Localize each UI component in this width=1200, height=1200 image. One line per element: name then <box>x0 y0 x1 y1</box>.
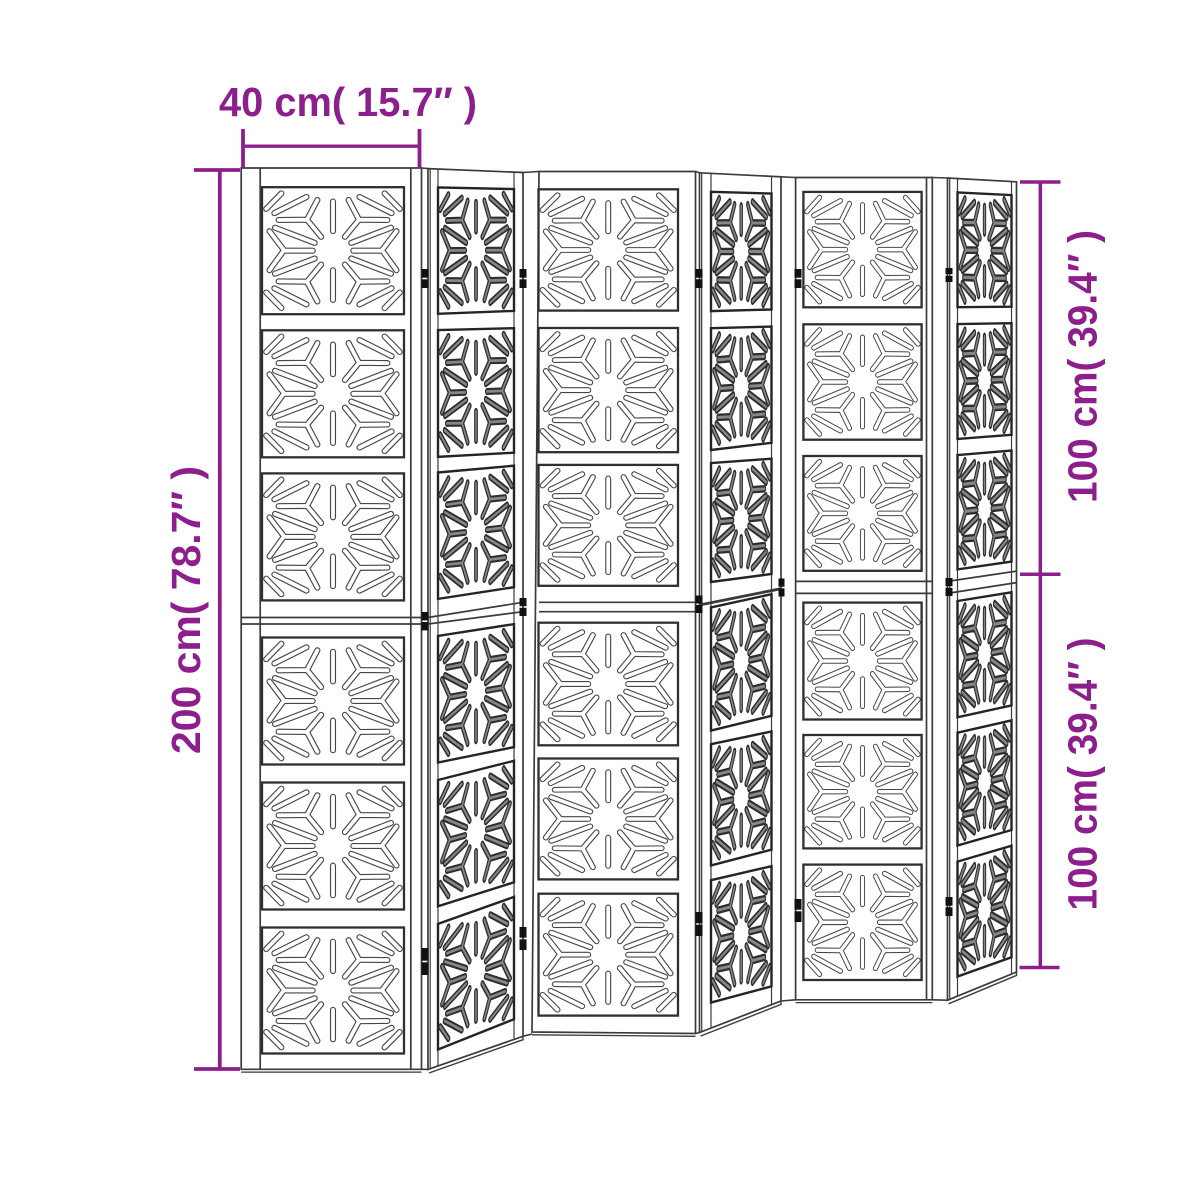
svg-text:100 cm( 39.4″ ): 100 cm( 39.4″ ) <box>1060 638 1106 911</box>
svg-text:200 cm( 78.7″ ): 200 cm( 78.7″ ) <box>163 466 209 754</box>
svg-text:40 cm( 15.7″ ): 40 cm( 15.7″ ) <box>219 79 477 125</box>
svg-text:100 cm( 39.4″ ): 100 cm( 39.4″ ) <box>1060 230 1106 503</box>
